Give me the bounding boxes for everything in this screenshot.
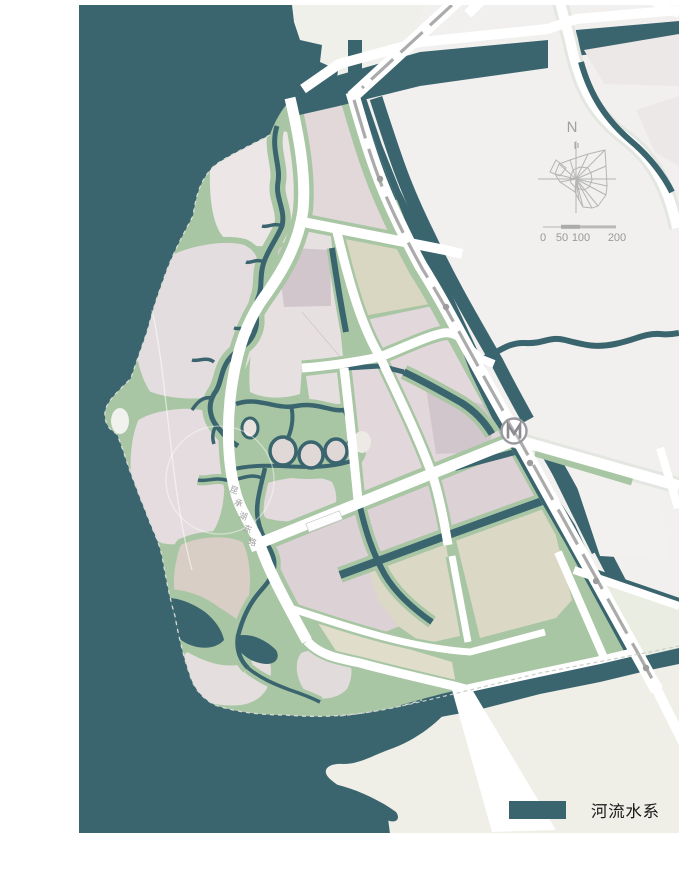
svg-text:200: 200 [608,232,626,244]
svg-text:50: 50 [556,232,568,244]
svg-text:100: 100 [572,232,590,244]
svg-text:0: 0 [540,232,546,244]
svg-text:N: N [567,119,578,136]
